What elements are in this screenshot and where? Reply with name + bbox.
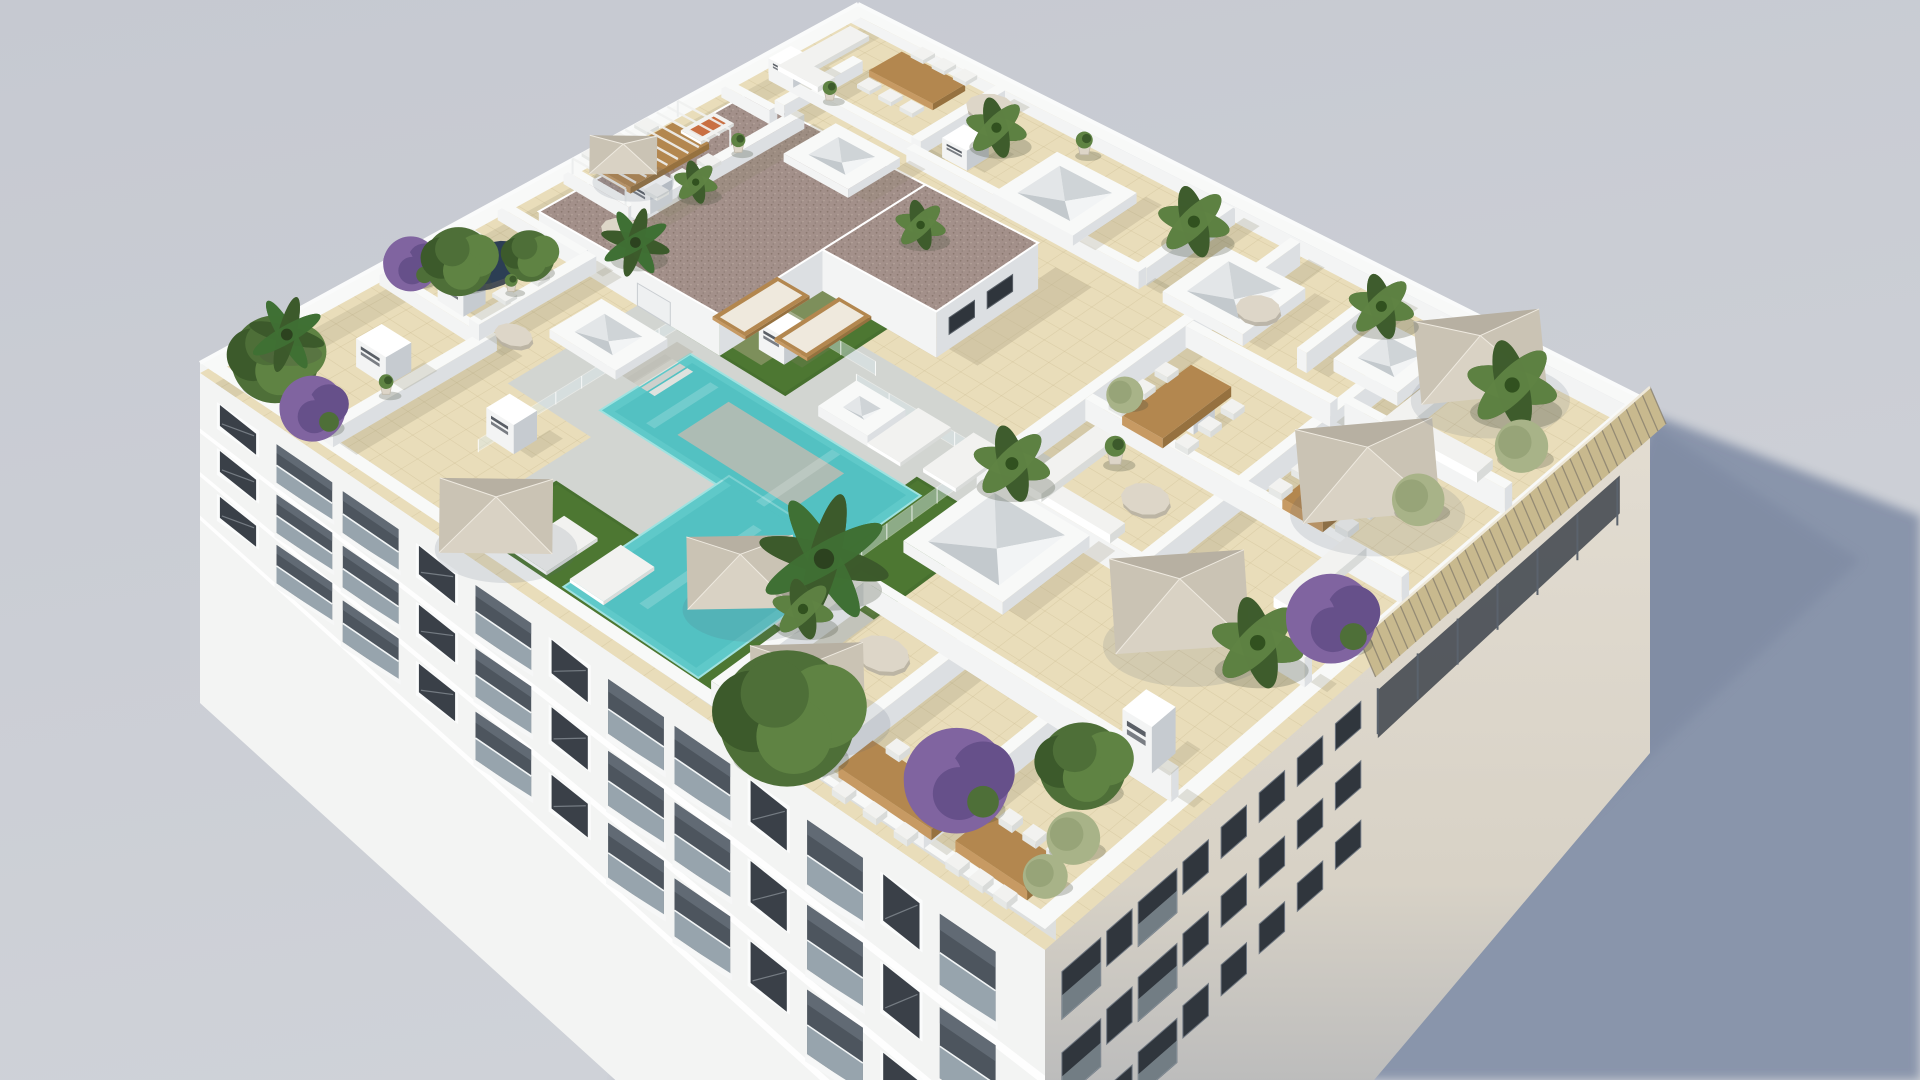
building-aerial-render bbox=[0, 0, 1920, 1080]
rooftop-3d-scene bbox=[0, 0, 1920, 1080]
